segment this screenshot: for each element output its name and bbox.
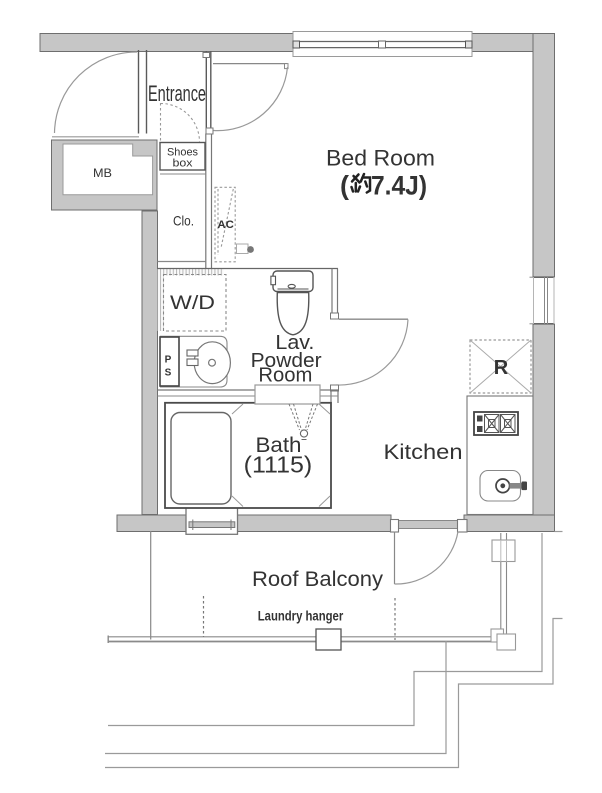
svg-text:(: ( [340, 171, 349, 201]
svg-text:box: box [173, 158, 194, 170]
svg-text:W/D: W/D [170, 292, 215, 314]
svg-text:R: R [494, 357, 509, 379]
svg-text:Roof Balcony: Roof Balcony [252, 568, 384, 591]
svg-text:MB: MB [93, 166, 112, 180]
svg-text:S: S [165, 368, 172, 379]
svg-text:AC: AC [217, 219, 234, 231]
svg-text:Kitchen: Kitchen [384, 440, 463, 464]
svg-text:(1115): (1115) [244, 452, 313, 478]
svg-text:7.4J): 7.4J) [371, 171, 427, 201]
svg-text:Room: Room [258, 365, 312, 387]
svg-text:P: P [165, 355, 172, 366]
svg-text:Clo.: Clo. [173, 213, 194, 229]
svg-text:Entrance: Entrance [148, 81, 206, 106]
svg-text:Bed Room: Bed Room [326, 146, 435, 171]
svg-text:Laundry hanger: Laundry hanger [258, 608, 344, 624]
